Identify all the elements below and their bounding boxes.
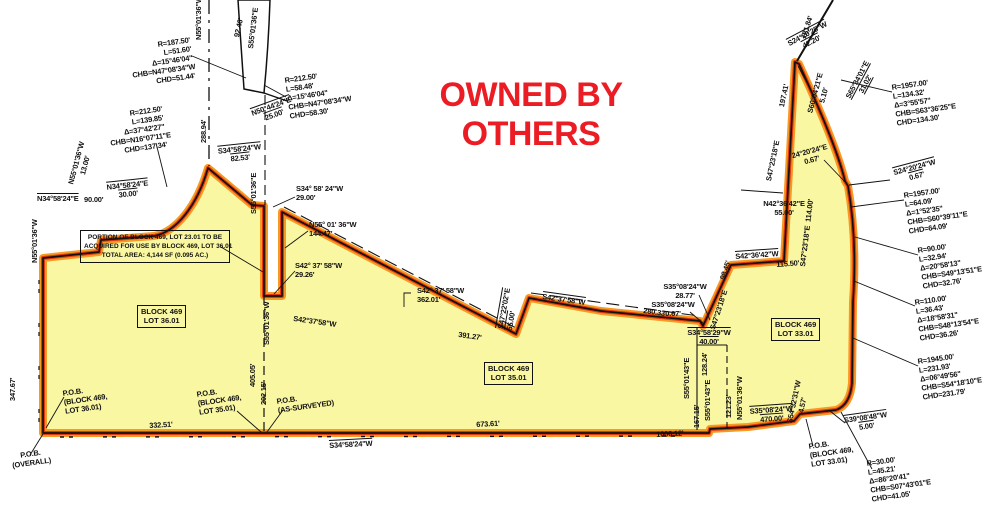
pob-overall: P.O.B. (OVERALL) [4, 446, 58, 471]
dimension-label: S55°01'36"E [249, 173, 258, 214]
curve-data-6: R=90.00' L=32.94' Δ=20°58'13" CHB=S49°13… [917, 238, 984, 291]
dimension-label: S24°20'24"W 0.67' [890, 157, 941, 187]
dimension-label: S42° 37' 58"W 362.01' [417, 286, 464, 304]
dimension-label: S55°01'36"W [262, 302, 271, 345]
dimension-label: 92.46' [232, 17, 245, 38]
curve-data-8: R=1945.00' L=231.93' Δ=06°49'56" CHB=S54… [917, 349, 984, 402]
dimension-label: 391.27' [458, 330, 482, 342]
dimension-label: S47°22'02"E 55.00' [496, 287, 521, 331]
dimension-label: 197.41' [777, 83, 791, 108]
dimension-label: 121.23' [724, 395, 733, 418]
dimension-label: 673.61' [476, 419, 500, 429]
dimension-label: S34°58'24"W 82.53' [215, 142, 265, 165]
dimension-label: 332.51' [149, 420, 173, 430]
lot-label-35-01: BLOCK 469 LOT 35.01 [484, 362, 533, 385]
dimension-label: 405.05' [248, 364, 257, 387]
acquisition-note-box: PORTION OF BLOCK 469, LOT 23.01 TO BE AC… [80, 230, 230, 263]
curve-data-3: R=212.50' L=139.85' Δ=37°42'27" CHB=N16°… [106, 104, 168, 156]
dimension-label: S42°37'58"W [542, 292, 586, 307]
curve-data-5: R=1957.00' L=64.09' Δ=1°52'35" CHB=S60°3… [903, 183, 969, 236]
dimension-label: 288.94' [199, 120, 208, 143]
dimension-label: 90.00' [84, 195, 103, 204]
lot-label-36-01: BLOCK 469 LOT 36.01 [137, 305, 186, 328]
plat-page: OWNED BY OTHERS R=187.50' L=51.60' Δ=15°… [0, 0, 1000, 528]
dimension-label: S34°58'24"W [329, 439, 373, 450]
dimension-label: S55°01'36"E [246, 7, 260, 49]
dimension-labels-layer: R=187.50' L=51.60' Δ=15°46'04" CHB=N47°0… [0, 0, 1000, 528]
pob-lot-36-01: P.O.B. (BLOCK 469, LOT 36.01) [62, 383, 109, 416]
dimension-label: N55°01'36"W 13.00' [66, 140, 95, 189]
dimension-label: S55°01'43"E [703, 380, 712, 421]
dimension-label: N55°01'36"W [735, 376, 744, 420]
dimension-label: S35°08'24"W 470.00' [748, 404, 795, 425]
dimension-label: N50°44'24"E 25.00' [248, 94, 297, 127]
pob-as-surveyed: P.O.B. (AS-SURVEYED) [276, 389, 334, 415]
dimension-label: S55°01'43"E [682, 358, 691, 399]
dimension-label: 128.24' [700, 353, 709, 376]
dimension-label: N55°01'36"W [194, 0, 203, 40]
dimension-label: N34°58'24"E 30.00' [104, 178, 152, 201]
dimension-label: S47°23'18"E [708, 289, 729, 331]
curve-data-9: R=30.00' L=45.21' Δ=86°20'41" CHB=S07°43… [866, 451, 933, 504]
dimension-label: 24°20'24"E 0.67' [789, 142, 832, 170]
pob-lot-35-01: P.O.B. (BLOCK 469, LOT 35.01) [196, 384, 243, 417]
curve-data-4: R=1957.00' L=134.32' Δ=3°55'57" CHB=S63°… [891, 75, 958, 128]
dimension-label: 347.67' [8, 378, 17, 401]
dimension-label: S34°58'29"W 40.00' [686, 328, 732, 346]
dimension-label: N55°01'36"W [30, 219, 39, 263]
dimension-label: S42°37'58"W [293, 314, 337, 329]
curve-data-1: R=187.50' L=51.60' Δ=15°46'04" CHB=N47°0… [128, 35, 196, 88]
dimension-label: 1006.12' [656, 429, 684, 439]
lot-label-33-01: BLOCK 469 LOT 33.01 [771, 318, 820, 341]
curve-data-7: R=110.00' L=36.43' Δ=18°58'31" CHB=S48°1… [914, 290, 981, 343]
dimension-label: 98.45' [718, 260, 733, 281]
dimension-label: N34°58'24"E [37, 194, 79, 203]
dimension-label: N42°36'42"E 55.00' [763, 199, 805, 217]
dimension-label: 167.15' [692, 405, 701, 428]
dimension-label: S39°08'48"W 5.00' [843, 410, 889, 434]
dimension-label: S35°08'24"W 0.67' [650, 300, 696, 318]
dimension-label: S65°34'01"E 31.02' [843, 58, 880, 105]
dimension-label: 202.15' [259, 382, 268, 405]
pob-lot-33-01: P.O.B. (BLOCK 469, LOT 33.01) [808, 436, 855, 469]
curve-data-2: R=212.50' L=58.48' Δ=15°46'04" CHB=N47°0… [284, 67, 353, 120]
dimension-label: S42° 37' 58"W 29.26' [295, 261, 342, 279]
dimension-label: 115.50' [776, 258, 799, 269]
dimension-label: S34° 58' 24"W 29.00' [296, 184, 343, 202]
dimension-label: S60°04'21"E 5.10' [805, 70, 834, 117]
dimension-label: S35°08'24"W 28.77' [662, 282, 708, 300]
dimension-label: S42°36'42"W [735, 249, 779, 261]
dimension-label: N55° 01' 36"W 144.47' [309, 220, 356, 238]
dimension-label: S47°23'18"E [764, 140, 781, 182]
